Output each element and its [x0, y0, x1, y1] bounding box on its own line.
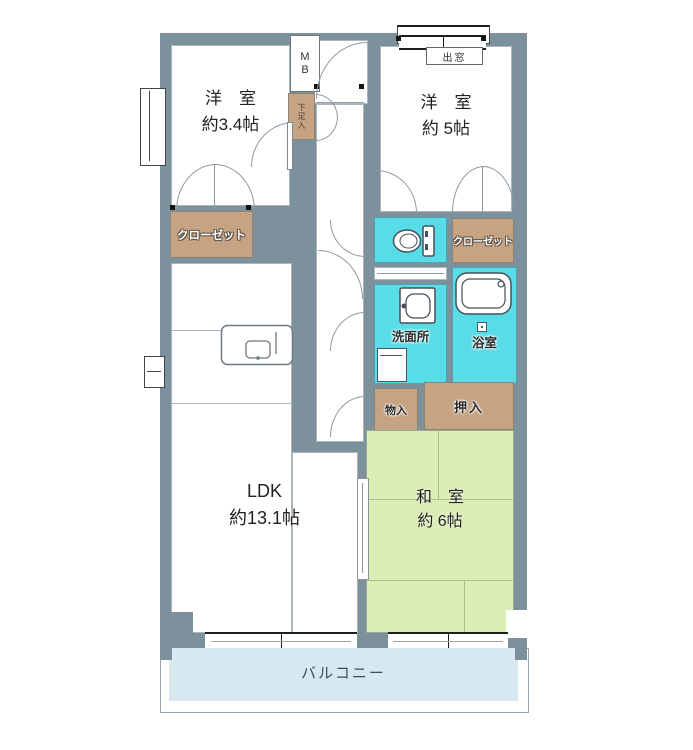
closet-left-label: クローゼット — [170, 211, 253, 258]
bath-drain-icon — [477, 322, 487, 332]
washitsu-size: 約 6帖 — [366, 510, 514, 534]
bay-window-label: 出窓 — [426, 47, 483, 65]
closet-right-label: クローゼット — [452, 218, 514, 263]
bathroom-label: 浴室 — [452, 332, 517, 350]
floor-plan: MB 下足入 — [0, 0, 693, 750]
jamb-mark — [170, 205, 175, 210]
storage-small-label: 物入 — [374, 388, 418, 432]
washing-machine-lid — [380, 355, 402, 356]
wall-step-bottom-left — [171, 612, 193, 633]
kitchen-zone-line — [171, 403, 292, 404]
balcony-label: バルコニー — [169, 662, 518, 683]
bath-drain-dot — [481, 326, 483, 328]
washing-machine-icon — [377, 348, 407, 382]
ldk-name: LDK — [171, 478, 358, 505]
laundry-shelf — [374, 267, 447, 280]
bedroom-small-size: 約3.4帖 — [171, 112, 290, 138]
balcony-wall-stub — [160, 648, 172, 660]
shelf-line — [377, 273, 444, 274]
ldk-size: 約13.1帖 — [171, 505, 358, 532]
washroom-label: 洗面所 — [374, 326, 447, 344]
toilet-icon — [390, 222, 440, 260]
bedroom-medium-label: 洋 室 約 5帖 — [380, 90, 512, 141]
jamb-mark — [396, 36, 401, 41]
shoe-cabinet-label: 下足入 — [296, 103, 307, 130]
pipe-space-notch — [506, 610, 527, 638]
sliding-partition-rail — [362, 483, 363, 573]
tatami-line — [366, 580, 514, 581]
room-ldk — [171, 263, 292, 633]
washitsu-label: 和 室 約 6帖 — [366, 486, 514, 534]
window-rail — [393, 641, 503, 642]
bedroom-small-name: 洋 室 — [171, 86, 290, 112]
tatami-line — [464, 580, 465, 633]
window-rail — [211, 641, 351, 642]
jamb-mark — [481, 36, 486, 41]
meter-box-label: MB — [299, 51, 311, 77]
balcony-wall-stub — [515, 648, 527, 660]
bedroom-small-label: 洋 室 約3.4帖 — [171, 86, 290, 137]
kitchen-side-window — [144, 356, 165, 388]
oshiire-label: 押入 — [424, 382, 514, 430]
washbasin-icon — [398, 286, 438, 326]
kitchen-sink-icon — [220, 324, 294, 366]
ldk-label: LDK 約13.1帖 — [171, 478, 358, 532]
bay-window-left-sash — [149, 91, 150, 161]
closet-door-seam — [482, 166, 483, 212]
closet-door-seam — [214, 164, 215, 210]
bay-window-left — [140, 88, 166, 166]
kitchen-side-window-sash — [147, 371, 161, 372]
bathtub-icon — [454, 270, 514, 318]
bedroom-medium-name: 洋 室 — [380, 90, 512, 116]
washitsu-name: 和 室 — [366, 486, 514, 510]
bedroom-medium-size: 約 5帖 — [380, 116, 512, 142]
